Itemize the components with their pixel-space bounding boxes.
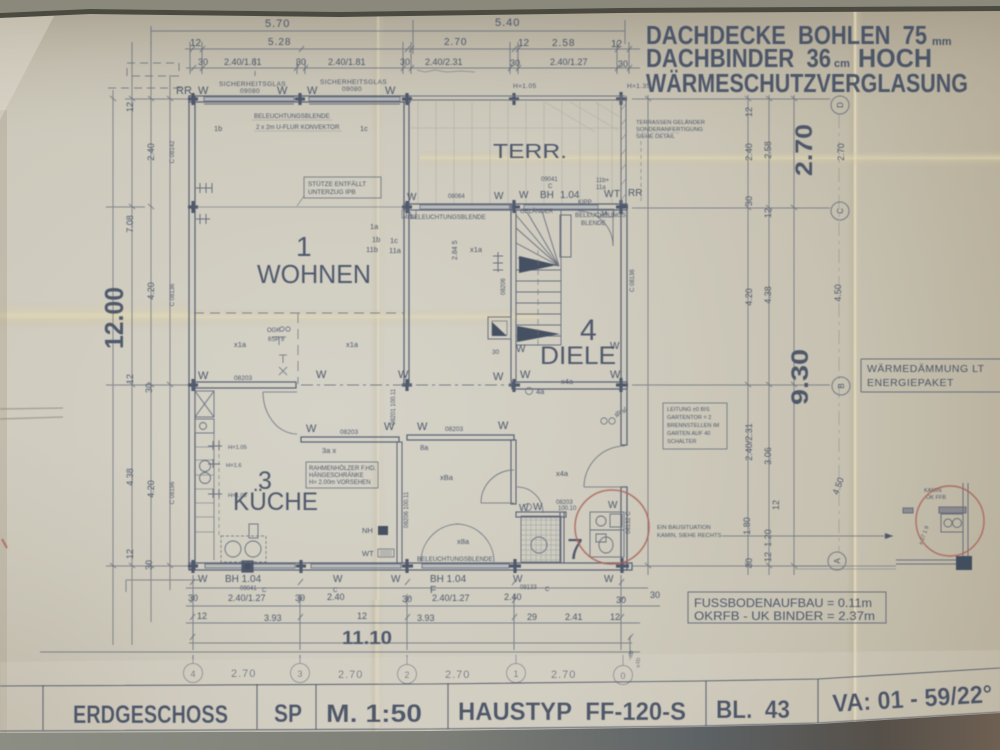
svg-text:W: W — [385, 85, 396, 97]
svg-text:H=1.05: H=1.05 — [228, 445, 247, 451]
svg-text:2.41: 2.41 — [565, 612, 583, 622]
svg-text:2.40/1.27: 2.40/1.27 — [432, 593, 470, 603]
svg-text:4.20: 4.20 — [146, 480, 156, 498]
svg-text:FUSSBODENAUFBAU = 0.11m: FUSSBODENAUFBAU = 0.11m — [694, 596, 872, 610]
svg-text:4.38: 4.38 — [763, 286, 773, 304]
svg-text:T: T — [614, 189, 620, 200]
svg-text:09041: 09041 — [240, 586, 257, 592]
svg-text:3a x: 3a x — [322, 446, 336, 455]
svg-text:TERRASSEN GELÄNDER: TERRASSEN GELÄNDER — [636, 119, 705, 126]
svg-text:30: 30 — [144, 560, 154, 570]
svg-text:12: 12 — [125, 102, 135, 112]
svg-text:B: B — [837, 383, 846, 388]
svg-text:W: W — [198, 574, 208, 585]
svg-text:2.84 5: 2.84 5 — [452, 240, 459, 260]
svg-text:2.40/2.31: 2.40/2.31 — [425, 57, 463, 67]
svg-text:30: 30 — [650, 590, 660, 600]
svg-text:12: 12 — [763, 552, 773, 562]
svg-text:H=1.05: H=1.05 — [228, 493, 247, 499]
svg-text:C 08136: C 08136 — [630, 269, 636, 292]
svg-text:30: 30 — [198, 57, 208, 67]
svg-text:12: 12 — [611, 39, 623, 50]
svg-text:WOHNEN: WOHNEN — [257, 259, 371, 289]
svg-text:ERDGESCHOSS: ERDGESCHOSS — [73, 701, 228, 729]
svg-text:1.20: 1.20 — [763, 529, 773, 547]
svg-text:12.00: 12.00 — [99, 287, 129, 349]
svg-text:EIN BAUSITUATION: EIN BAUSITUATION — [657, 525, 711, 531]
svg-text:RAHMENHÖLZER F.HD.: RAHMENHÖLZER F.HD. — [309, 465, 376, 472]
svg-text:W: W — [307, 85, 318, 97]
svg-text:30: 30 — [492, 349, 500, 356]
svg-text:2.58: 2.58 — [552, 38, 575, 49]
svg-text:x4a: x4a — [561, 377, 574, 386]
svg-text:WÄRMEDÄMMUNG LT: WÄRMEDÄMMUNG LT — [867, 363, 985, 375]
svg-text:08201 100.11: 08201 100.11 — [391, 388, 397, 425]
svg-text:BELEUCHTUNGS: BELEUCHTUNGS — [575, 212, 626, 219]
svg-text:2.40: 2.40 — [504, 592, 522, 602]
svg-text:GARTENTOR = 2: GARTENTOR = 2 — [667, 415, 711, 421]
svg-text:W: W — [516, 344, 526, 355]
svg-text:08132 C: 08132 C — [626, 511, 632, 534]
svg-text:SONDERANFERTIGUNG: SONDERANFERTIGUNG — [636, 127, 703, 133]
svg-text:1: 1 — [296, 231, 312, 262]
svg-text:x4a: x4a — [556, 469, 569, 478]
svg-text:C: C — [548, 184, 553, 190]
svg-text:W: W — [333, 574, 343, 585]
svg-text:09080: 09080 — [342, 86, 362, 93]
svg-text:xBa: xBa — [440, 473, 454, 482]
svg-text:2.40/1.81: 2.40/1.81 — [328, 57, 366, 67]
svg-text:12: 12 — [357, 611, 367, 621]
svg-text:30: 30 — [618, 59, 628, 69]
svg-text:4.20: 4.20 — [744, 288, 754, 306]
svg-text:12: 12 — [197, 611, 207, 621]
svg-text:C 08136: C 08136 — [170, 283, 176, 306]
svg-text:GELÄNDER: GELÄNDER — [520, 208, 554, 215]
svg-text:W: W — [533, 502, 543, 513]
svg-text:12: 12 — [771, 500, 781, 510]
svg-text:2.40: 2.40 — [146, 143, 156, 161]
svg-text:30: 30 — [295, 593, 305, 603]
svg-text:7: 7 — [567, 534, 583, 566]
svg-text:1.04: 1.04 — [560, 190, 580, 201]
svg-text:SCHALTER: SCHALTER — [667, 439, 696, 445]
svg-text:C: C — [545, 587, 550, 593]
svg-text:30: 30 — [188, 593, 198, 603]
svg-text:HÄNGESCHRÄNKE: HÄNGESCHRÄNKE — [309, 472, 364, 479]
svg-text:x8a: x8a — [457, 537, 470, 546]
svg-text:W: W — [494, 191, 504, 202]
svg-text:BLENDE: BLENDE — [581, 220, 606, 227]
svg-text:2.70: 2.70 — [836, 143, 846, 161]
svg-text:mm: mm — [932, 36, 952, 48]
svg-text:OKRFB - UK BINDER = 2.37m: OKRFB - UK BINDER = 2.37m — [694, 609, 875, 623]
svg-text:12: 12 — [744, 107, 754, 117]
svg-text:BELEUCHTUNGSBLENDE: BELEUCHTUNGSBLENDE — [417, 556, 493, 563]
svg-text:30: 30 — [402, 594, 412, 604]
svg-text:4.20: 4.20 — [146, 282, 156, 300]
svg-text:cm: cm — [834, 58, 850, 70]
svg-text:1a: 1a — [370, 222, 379, 231]
svg-text:1c: 1c — [390, 236, 398, 245]
svg-text:x1a: x1a — [234, 340, 247, 349]
svg-text:OK FFB: OK FFB — [926, 495, 946, 501]
svg-text:08203: 08203 — [234, 375, 252, 382]
svg-text:KIPP: KIPP — [578, 200, 592, 206]
svg-text:H=1.05: H=1.05 — [513, 83, 537, 90]
svg-text:TERR.: TERR. — [493, 141, 567, 163]
svg-text:11b+: 11b+ — [596, 178, 610, 184]
svg-text:W: W — [277, 85, 288, 97]
svg-text:4.38: 4.38 — [125, 468, 135, 486]
svg-text:6SP 9: 6SP 9 — [268, 337, 285, 343]
svg-text:WT: WT — [362, 549, 374, 558]
svg-text:STÜTZE ENTFÄLLT: STÜTZE ENTFÄLLT — [308, 180, 366, 188]
svg-text:BH: BH — [540, 190, 554, 201]
svg-text:29: 29 — [527, 612, 537, 622]
svg-text:SICHERHEITSGLAS: SICHERHEITSGLAS — [320, 79, 387, 86]
svg-text:W: W — [316, 369, 327, 381]
svg-text:H= 2.00m VORSEHEN: H= 2.00m VORSEHEN — [309, 480, 371, 486]
svg-text:2.40/1.27: 2.40/1.27 — [550, 57, 588, 67]
svg-text:W: W — [610, 369, 621, 381]
svg-text:W: W — [610, 341, 620, 352]
svg-text:11.10: 11.10 — [342, 628, 392, 648]
svg-text:D: D — [836, 102, 845, 108]
svg-text:GARTEN AUF 40: GARTEN AUF 40 — [667, 431, 710, 437]
svg-text:H=1.6: H=1.6 — [226, 463, 242, 469]
svg-text:RR: RR — [176, 85, 192, 97]
svg-text:5.70: 5.70 — [265, 18, 290, 30]
svg-text:ENERGIEPAKET: ENERGIEPAKET — [867, 377, 954, 389]
svg-text:4.50: 4.50 — [833, 284, 843, 302]
svg-text:NH: NH — [362, 526, 373, 535]
svg-text:12: 12 — [610, 612, 620, 622]
svg-text:100.10: 100.10 — [558, 506, 577, 512]
svg-text:UNTERZUG IPB: UNTERZUG IPB — [308, 189, 356, 196]
svg-text:8a: 8a — [420, 443, 429, 452]
svg-text:30: 30 — [296, 57, 306, 67]
svg-text:WÄRMESCHUTZVERGLASUNG: WÄRMESCHUTZVERGLASUNG — [646, 68, 968, 98]
svg-text:M. 1:50: M. 1:50 — [326, 700, 422, 728]
svg-text:x1a: x1a — [470, 245, 483, 254]
svg-text:08064: 08064 — [448, 194, 465, 200]
svg-text:HAUSTYP FF-120-S: HAUSTYP FF-120-S — [458, 698, 686, 726]
svg-text:W: W — [604, 574, 614, 585]
svg-text:BH 1.04: BH 1.04 — [225, 574, 262, 585]
svg-text:09041: 09041 — [541, 177, 558, 183]
svg-text:W: W — [498, 420, 509, 432]
svg-text:4a: 4a — [536, 387, 545, 396]
svg-text:W: W — [519, 190, 529, 201]
svg-text:1b: 1b — [214, 124, 222, 133]
svg-text:3.06: 3.06 — [763, 447, 773, 465]
svg-text:2.40/2.31: 2.40/2.31 — [744, 423, 754, 461]
svg-text:LEITUNG ±0 BIS: LEITUNG ±0 BIS — [667, 407, 710, 413]
svg-text:11b: 11b — [366, 245, 378, 254]
svg-text:30: 30 — [144, 383, 154, 393]
svg-text:W: W — [513, 574, 523, 585]
svg-text:BELEUCHTUNGSBLENDE: BELEUCHTUNGSBLENDE — [254, 113, 330, 120]
svg-text:11a: 11a — [389, 246, 402, 255]
svg-text:12: 12 — [190, 38, 202, 49]
svg-text:5.28: 5.28 — [268, 37, 291, 48]
svg-text:08203: 08203 — [445, 426, 463, 433]
svg-text:x1a: x1a — [346, 340, 359, 349]
svg-text:30: 30 — [744, 196, 754, 206]
svg-text:1c: 1c — [360, 124, 368, 133]
svg-text:1.80: 1.80 — [742, 517, 752, 535]
svg-text:KAMIN, SIEHE RECHTS: KAMIN, SIEHE RECHTS — [657, 533, 722, 539]
svg-text:08206 100.11: 08206 100.11 — [404, 491, 410, 528]
svg-text:2.70: 2.70 — [444, 37, 467, 48]
svg-text:W: W — [391, 574, 401, 585]
svg-text:3.93: 3.93 — [264, 613, 282, 623]
svg-text:1b: 1b — [372, 235, 380, 244]
svg-text:RR: RR — [628, 188, 642, 199]
svg-text:W: W — [198, 370, 209, 382]
svg-text:SIEHE DETAIL: SIEHE DETAIL — [636, 134, 676, 140]
svg-text:W: W — [398, 369, 409, 381]
svg-text:2.40: 2.40 — [744, 143, 754, 161]
svg-text:08133: 08133 — [520, 585, 537, 591]
svg-text:OGK: OGK — [267, 328, 280, 334]
svg-text:9.30: 9.30 — [787, 349, 814, 405]
svg-text:2.40/1.27: 2.40/1.27 — [228, 593, 266, 603]
svg-text:DIELE: DIELE — [540, 342, 616, 370]
svg-text:C: C — [836, 208, 845, 214]
svg-text:W: W — [306, 423, 317, 435]
svg-text:2 x 2m U-FLUR KONVEKTOR: 2 x 2m U-FLUR KONVEKTOR — [256, 124, 340, 131]
svg-text:A: A — [833, 558, 842, 564]
svg-text:08206: 08206 — [501, 278, 507, 295]
svg-text:W: W — [520, 369, 531, 381]
svg-text:W: W — [417, 421, 428, 433]
svg-text:W: W — [493, 371, 504, 383]
svg-text:W: W — [608, 500, 618, 511]
svg-text:BRENNSTELLEN IM: BRENNSTELLEN IM — [667, 423, 720, 429]
svg-text:C 08142: C 08142 — [170, 140, 176, 163]
svg-text:C 08196: C 08196 — [170, 481, 176, 504]
svg-text:2.70: 2.70 — [791, 124, 818, 176]
svg-text:12: 12 — [125, 549, 135, 559]
svg-text:7.08: 7.08 — [125, 215, 135, 233]
svg-text:W: W — [519, 503, 529, 514]
svg-text:BL. 43: BL. 43 — [716, 696, 790, 724]
svg-text:09080: 09080 — [240, 88, 260, 95]
svg-text:11a: 11a — [596, 185, 606, 191]
svg-text:2.40/1.81: 2.40/1.81 — [224, 57, 262, 67]
svg-text:SP: SP — [274, 700, 302, 728]
svg-text:5.40: 5.40 — [495, 17, 520, 29]
svg-text:2.40: 2.40 — [327, 592, 345, 602]
svg-text:3.93: 3.93 — [417, 613, 435, 623]
svg-text:W: W — [198, 85, 209, 97]
svg-text:2.58: 2.58 — [763, 141, 773, 159]
svg-text:BH 1.04: BH 1.04 — [430, 574, 467, 585]
svg-text:08203: 08203 — [340, 429, 358, 436]
svg-text:BELEUCHTUNGSBLENDE: BELEUCHTUNGSBLENDE — [410, 214, 486, 221]
